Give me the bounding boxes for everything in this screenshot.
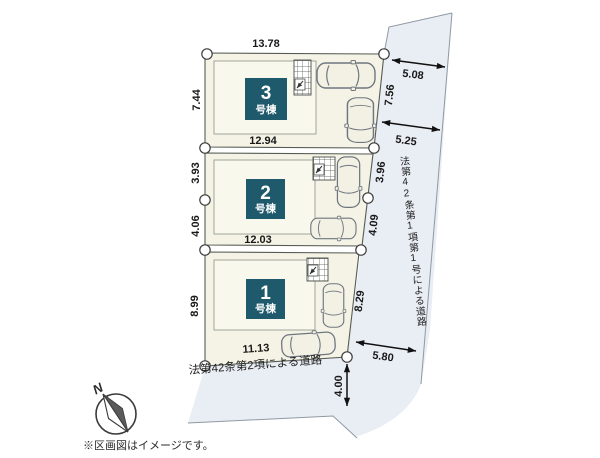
car-icon xyxy=(345,98,376,143)
dim-7-56: 7.56 xyxy=(383,84,397,107)
dim-11-13: 11.13 xyxy=(242,342,270,356)
dim-4-09: 4.09 xyxy=(367,214,381,237)
lot-1-suffix: 号棟 xyxy=(255,302,276,315)
dim-4-00: 4.00 xyxy=(333,375,345,396)
lot-2-suffix: 号棟 xyxy=(255,202,276,215)
compass: N xyxy=(90,379,136,434)
disclaimer-note: ※区画図はイメージです。 xyxy=(83,437,214,453)
dim-8-99: 8.99 xyxy=(189,295,201,316)
dim-12-94: 12.94 xyxy=(249,135,277,147)
entrance-hatch-1 xyxy=(307,258,328,281)
lot-3-number: 3 xyxy=(261,83,272,104)
lot-3-plate: 3 号棟 xyxy=(245,78,287,120)
plot-layout-diagram: 3 号棟 2 号棟 1 号棟 13.78 7.44 7.56 12.94 3.9… xyxy=(0,0,600,458)
car-icon xyxy=(321,284,346,328)
entrance-hatch-3 xyxy=(294,60,311,95)
lot-3-suffix: 号棟 xyxy=(256,103,277,116)
car-icon xyxy=(311,216,356,241)
dim-13-78: 13.78 xyxy=(252,38,280,50)
dim-4-06: 4.06 xyxy=(190,215,202,236)
lot-2-plate: 2 号棟 xyxy=(246,179,285,219)
lot-1-number: 1 xyxy=(260,283,271,304)
dim-3-96: 3.96 xyxy=(374,161,388,184)
dim-12-03: 12.03 xyxy=(244,234,272,246)
dim-7-44: 7.44 xyxy=(191,88,203,110)
car-icon xyxy=(317,61,375,91)
site-plan-canvas: 3 号棟 2 号棟 1 号棟 13.78 7.44 7.56 12.94 3.9… xyxy=(0,0,600,458)
car-icon xyxy=(335,157,362,207)
dim-3-93: 3.93 xyxy=(190,162,202,183)
lot-2-number: 2 xyxy=(260,183,271,204)
lot-1-plate: 1 号棟 xyxy=(246,279,285,319)
entrance-hatch-2 xyxy=(313,157,335,180)
